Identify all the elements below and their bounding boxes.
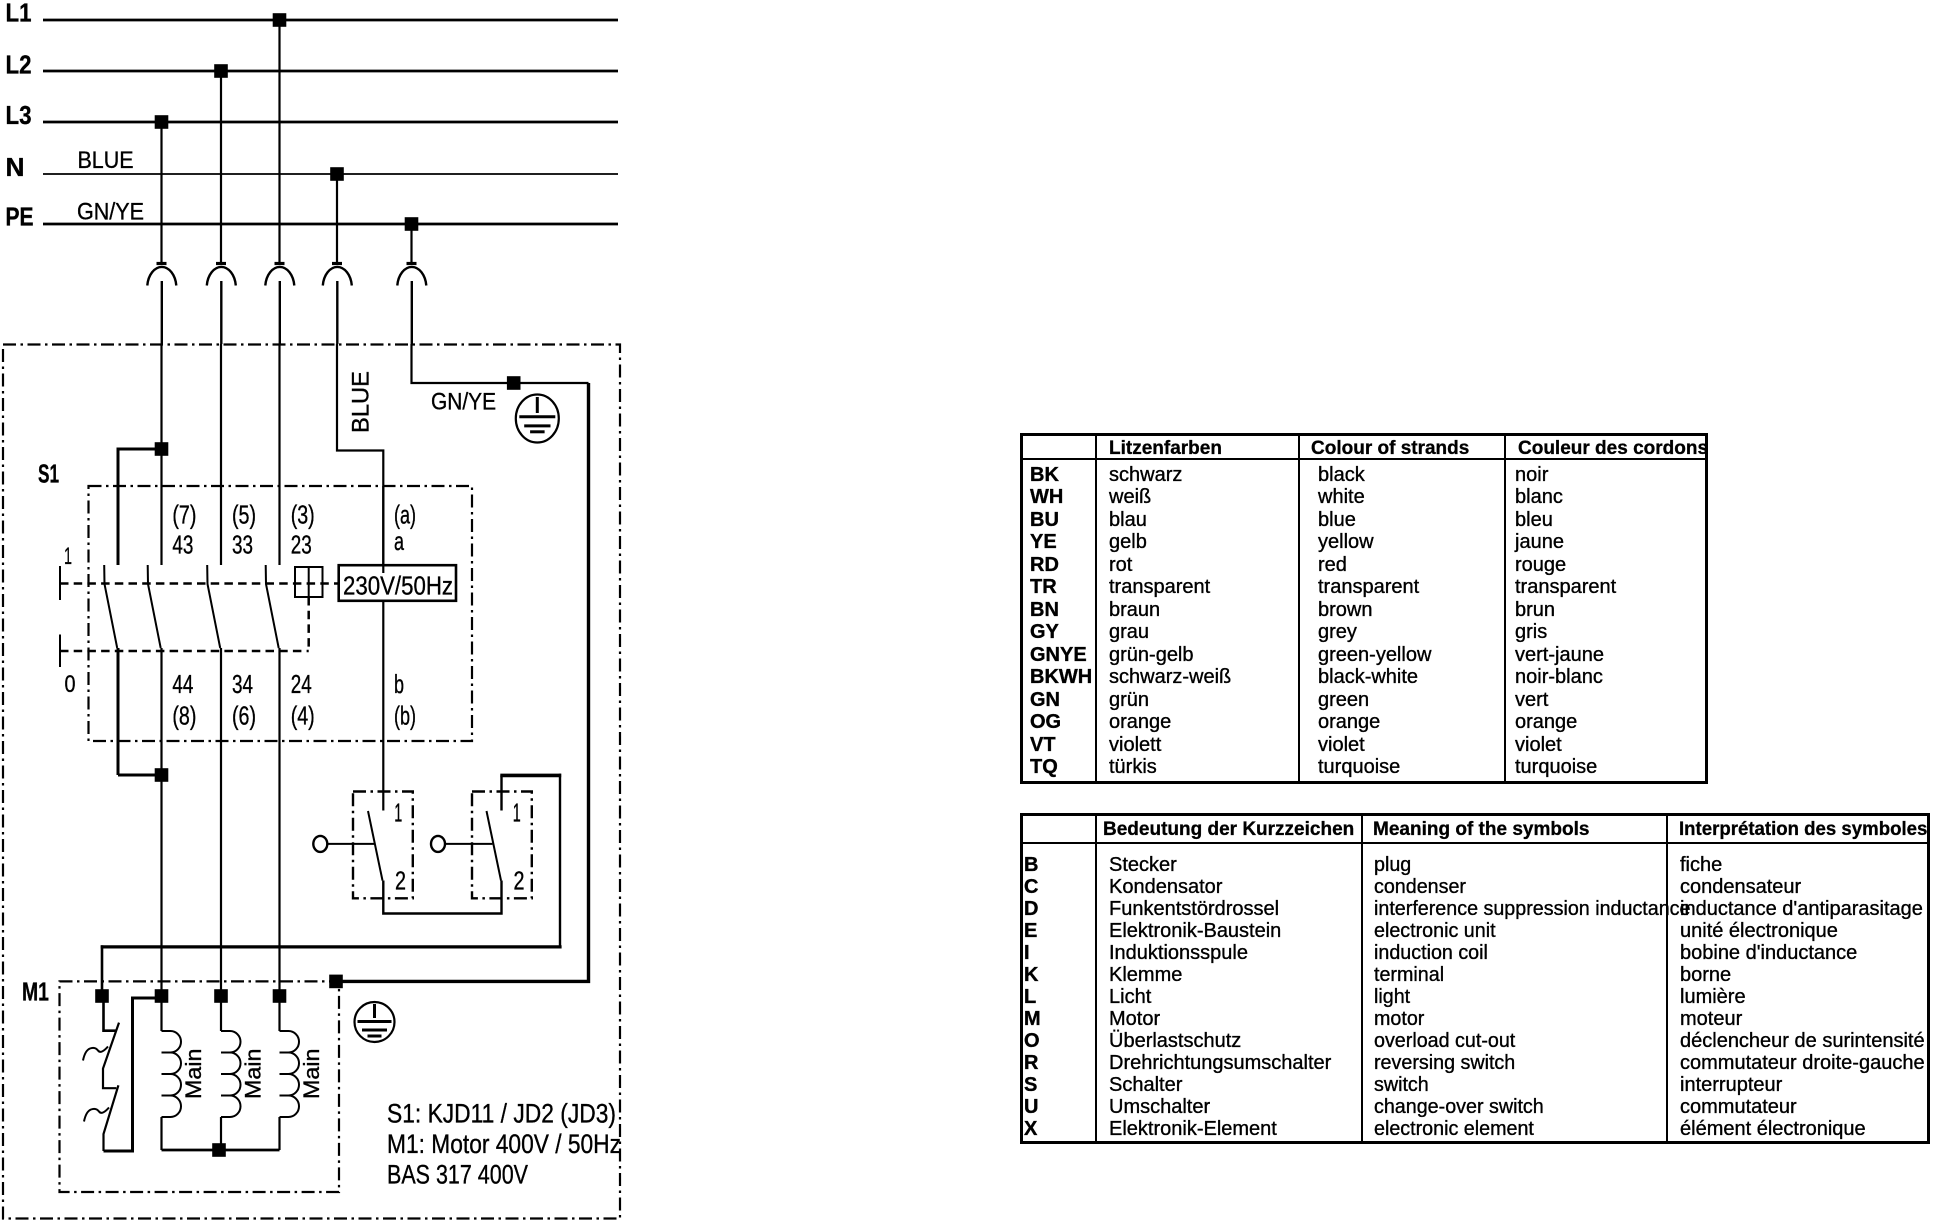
svg-text:PE: PE xyxy=(6,202,34,232)
svg-text:43: 43 xyxy=(172,530,193,560)
svg-text:1: 1 xyxy=(513,798,521,828)
svg-text:44: 44 xyxy=(172,669,193,699)
svg-text:1: 1 xyxy=(64,543,72,570)
svg-text:1: 1 xyxy=(394,798,402,828)
svg-text:GN/YE: GN/YE xyxy=(431,389,496,416)
svg-text:N: N xyxy=(6,152,25,182)
svg-text:L1: L1 xyxy=(6,0,32,28)
svg-text:2: 2 xyxy=(395,866,406,896)
svg-text:Main: Main xyxy=(241,1049,266,1100)
svg-text:a: a xyxy=(394,526,404,556)
svg-text:GN/YE: GN/YE xyxy=(77,199,144,226)
svg-text:BLUE: BLUE xyxy=(78,147,134,174)
svg-text:2: 2 xyxy=(514,866,525,896)
svg-text:L3: L3 xyxy=(6,100,32,130)
svg-text:(a): (a) xyxy=(394,500,416,530)
svg-text:Main: Main xyxy=(299,1049,324,1100)
svg-text:34: 34 xyxy=(232,669,253,699)
svg-text:(b): (b) xyxy=(394,701,416,731)
svg-text:230V/50Hz: 230V/50Hz xyxy=(343,571,453,601)
svg-text:S1: KJD11 / JD2 (JD3): S1: KJD11 / JD2 (JD3) xyxy=(387,1099,616,1129)
svg-text:M1: M1 xyxy=(22,977,49,1007)
svg-text:(7): (7) xyxy=(172,500,196,530)
svg-text:(8): (8) xyxy=(172,701,196,731)
svg-text:0: 0 xyxy=(65,671,76,698)
svg-text:(3): (3) xyxy=(291,500,315,530)
svg-text:(4): (4) xyxy=(291,701,315,731)
svg-text:BLUE: BLUE xyxy=(348,371,375,433)
svg-text:(5): (5) xyxy=(232,500,256,530)
svg-text:24: 24 xyxy=(291,669,312,699)
svg-text:33: 33 xyxy=(232,530,253,560)
svg-text:23: 23 xyxy=(291,530,312,560)
svg-text:Main: Main xyxy=(181,1049,206,1100)
svg-text:BAS 317 400V: BAS 317 400V xyxy=(387,1160,528,1190)
svg-text:(6): (6) xyxy=(232,701,256,731)
svg-text:b: b xyxy=(394,669,404,699)
svg-text:L2: L2 xyxy=(6,50,32,80)
svg-text:M1: Motor 400V / 50Hz: M1: Motor 400V / 50Hz xyxy=(387,1129,621,1159)
svg-text:S1: S1 xyxy=(38,459,59,489)
